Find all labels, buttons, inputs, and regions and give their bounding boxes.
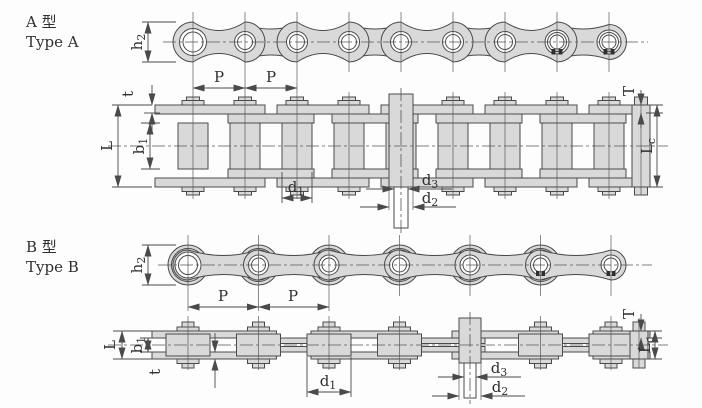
dim-label-T: T — [620, 309, 638, 319]
dim-label-L: L — [98, 141, 116, 151]
dim-label-h2: h2 — [128, 34, 148, 51]
dim-label-T: T — [620, 86, 638, 96]
type-b-title-en: Type B — [26, 258, 79, 276]
type-b-title-cn: B 型 — [26, 238, 57, 256]
dim-label-pitch-1: P — [214, 68, 224, 86]
dim-label-t: t — [119, 91, 137, 97]
dim-label-t: t — [146, 369, 164, 375]
type-a-title-cn: A 型 — [25, 13, 57, 31]
roller-chain-dimension-drawing: A 型 Type A h2 P P — [0, 0, 702, 408]
dim-label-h2: h2 — [128, 257, 148, 274]
type-a-chain-section-view — [108, 88, 668, 236]
type-a-chain-side-view — [163, 12, 648, 92]
technical-drawing-canvas: A 型 Type A h2 P P — [0, 0, 702, 408]
dim-label-L: L — [101, 340, 119, 350]
type-b-chain-side-view — [158, 235, 652, 311]
dim-label-pitch-2: P — [288, 287, 298, 305]
dim-label-d2: d2 — [492, 378, 509, 398]
type-b-side-dimensions: h2 P P — [128, 245, 329, 307]
type-b-chain-section-view — [108, 312, 668, 404]
dim-label-pitch-2: P — [266, 68, 276, 86]
dim-label-d3: d3 — [491, 359, 508, 379]
dim-label-d2: d2 — [422, 189, 439, 209]
dim-label-d1: d1 — [320, 372, 337, 392]
type-a-title-en: Type A — [26, 33, 79, 51]
dim-label-pitch-1: P — [218, 287, 228, 305]
dim-label-b1: b1 — [128, 337, 148, 354]
dim-label-b1: b1 — [130, 138, 150, 155]
